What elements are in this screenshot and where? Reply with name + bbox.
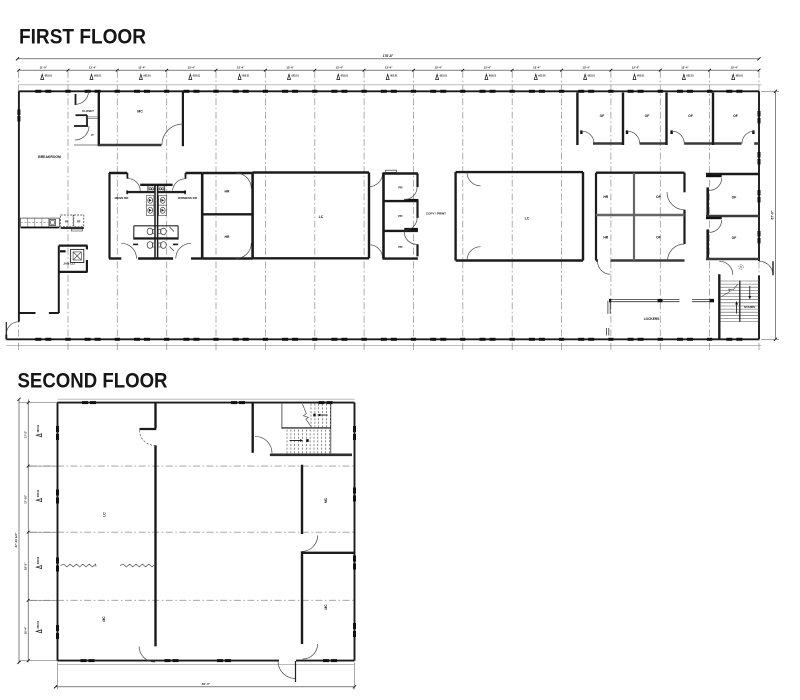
svg-text:SECOND FLOOR: SECOND FLOOR (18, 369, 168, 393)
svg-text:600.04: 600.04 (37, 424, 40, 432)
svg-text:13’-4”: 13’-4” (434, 66, 442, 70)
svg-text:LC: LC (319, 215, 324, 219)
svg-text:17’-10”: 17’-10” (23, 494, 27, 504)
svg-text:603.01: 603.01 (94, 74, 102, 77)
svg-text:81’-0”: 81’-0” (202, 682, 211, 686)
svg-text:603.01: 603.01 (440, 74, 448, 77)
svg-text:67’-0”: 67’-0” (771, 210, 775, 219)
svg-text:47’-10 1/2”: 47’-10 1/2” (14, 532, 18, 548)
svg-text:MENS RR: MENS RR (115, 196, 130, 200)
svg-text:17’-2”: 17’-2” (23, 430, 27, 438)
svg-text:13’-4”: 13’-4” (286, 66, 294, 70)
svg-text:OF: OF (600, 114, 605, 118)
svg-text:HR: HR (225, 235, 230, 239)
svg-text:13’-4”: 13’-4” (237, 66, 245, 70)
svg-text:178’-8”: 178’-8” (383, 54, 394, 58)
svg-text:13’-4”: 13’-4” (731, 66, 739, 70)
svg-text:CLOSET: CLOSET (82, 109, 94, 113)
svg-text:603.01: 603.01 (637, 74, 645, 77)
svg-text:MC: MC (324, 497, 328, 503)
svg-text:13’-4”: 13’-4” (533, 66, 541, 70)
svg-text:16’-4”: 16’-4” (23, 626, 27, 634)
svg-text:OF: OF (732, 195, 737, 199)
svg-text:13’-4”: 13’-4” (582, 66, 590, 70)
svg-text:MC: MC (137, 110, 143, 114)
svg-text:603.01: 603.01 (588, 74, 596, 77)
svg-text:OF: OF (656, 236, 661, 240)
svg-text:MC: MC (102, 616, 106, 622)
svg-text:11’-0”: 11’-0” (40, 66, 48, 70)
svg-text:OF: OF (688, 114, 693, 118)
svg-text:18’-5”: 18’-5” (23, 562, 27, 570)
svg-text:LOCKERS: LOCKERS (644, 317, 660, 321)
svg-text:603.01: 603.01 (736, 74, 744, 77)
svg-text:RF: RF (77, 219, 81, 223)
svg-text:603.01: 603.01 (143, 74, 151, 77)
svg-text:HR: HR (225, 190, 230, 194)
svg-text:STAIRS: STAIRS (744, 305, 755, 309)
svg-text:13’-4”: 13’-4” (336, 66, 344, 70)
svg-text:WOMENS RR: WOMENS RR (178, 196, 198, 200)
svg-text:600.04: 600.04 (37, 556, 40, 564)
svg-text:600.04: 600.04 (37, 621, 40, 629)
svg-text:13’-4”: 13’-4” (385, 66, 393, 70)
svg-text:LC: LC (525, 217, 530, 221)
svg-text:13’-4”: 13’-4” (484, 66, 492, 70)
svg-text:MC: MC (324, 604, 328, 610)
svg-text:603.01: 603.01 (341, 74, 349, 77)
svg-text:603.01: 603.01 (686, 74, 694, 77)
svg-text:13’-4”: 13’-4” (89, 66, 97, 70)
svg-text:603.01: 603.01 (489, 74, 497, 77)
svg-text:603.01: 603.01 (193, 74, 201, 77)
svg-text:FIRST FLOOR: FIRST FLOOR (19, 25, 146, 49)
svg-text:BREAKROOM: BREAKROOM (38, 155, 61, 159)
svg-text:LC: LC (103, 512, 107, 517)
svg-text:13’-4”: 13’-4” (138, 66, 146, 70)
svg-text:HR: HR (603, 236, 608, 240)
svg-text:COPY / PRINT: COPY / PRINT (426, 212, 446, 216)
svg-text:IT: IT (91, 133, 94, 137)
svg-text:OF: OF (645, 114, 650, 118)
svg-text:OF: OF (733, 114, 738, 118)
svg-text:603.01: 603.01 (538, 74, 546, 77)
svg-text:603.01: 603.01 (292, 74, 300, 77)
svg-text:600.04: 600.04 (37, 489, 40, 497)
svg-text:603.01: 603.01 (390, 74, 398, 77)
svg-text:RF: RF (65, 219, 69, 223)
svg-text:603.01: 603.01 (45, 74, 53, 77)
svg-text:OF: OF (656, 195, 661, 199)
svg-text:13’-4”: 13’-4” (188, 66, 196, 70)
svg-text:13’-4”: 13’-4” (632, 66, 640, 70)
svg-text:HR: HR (603, 195, 608, 199)
svg-text:603.01: 603.01 (242, 74, 250, 77)
svg-text:OF: OF (732, 236, 737, 240)
svg-text:13’-4”: 13’-4” (681, 66, 689, 70)
